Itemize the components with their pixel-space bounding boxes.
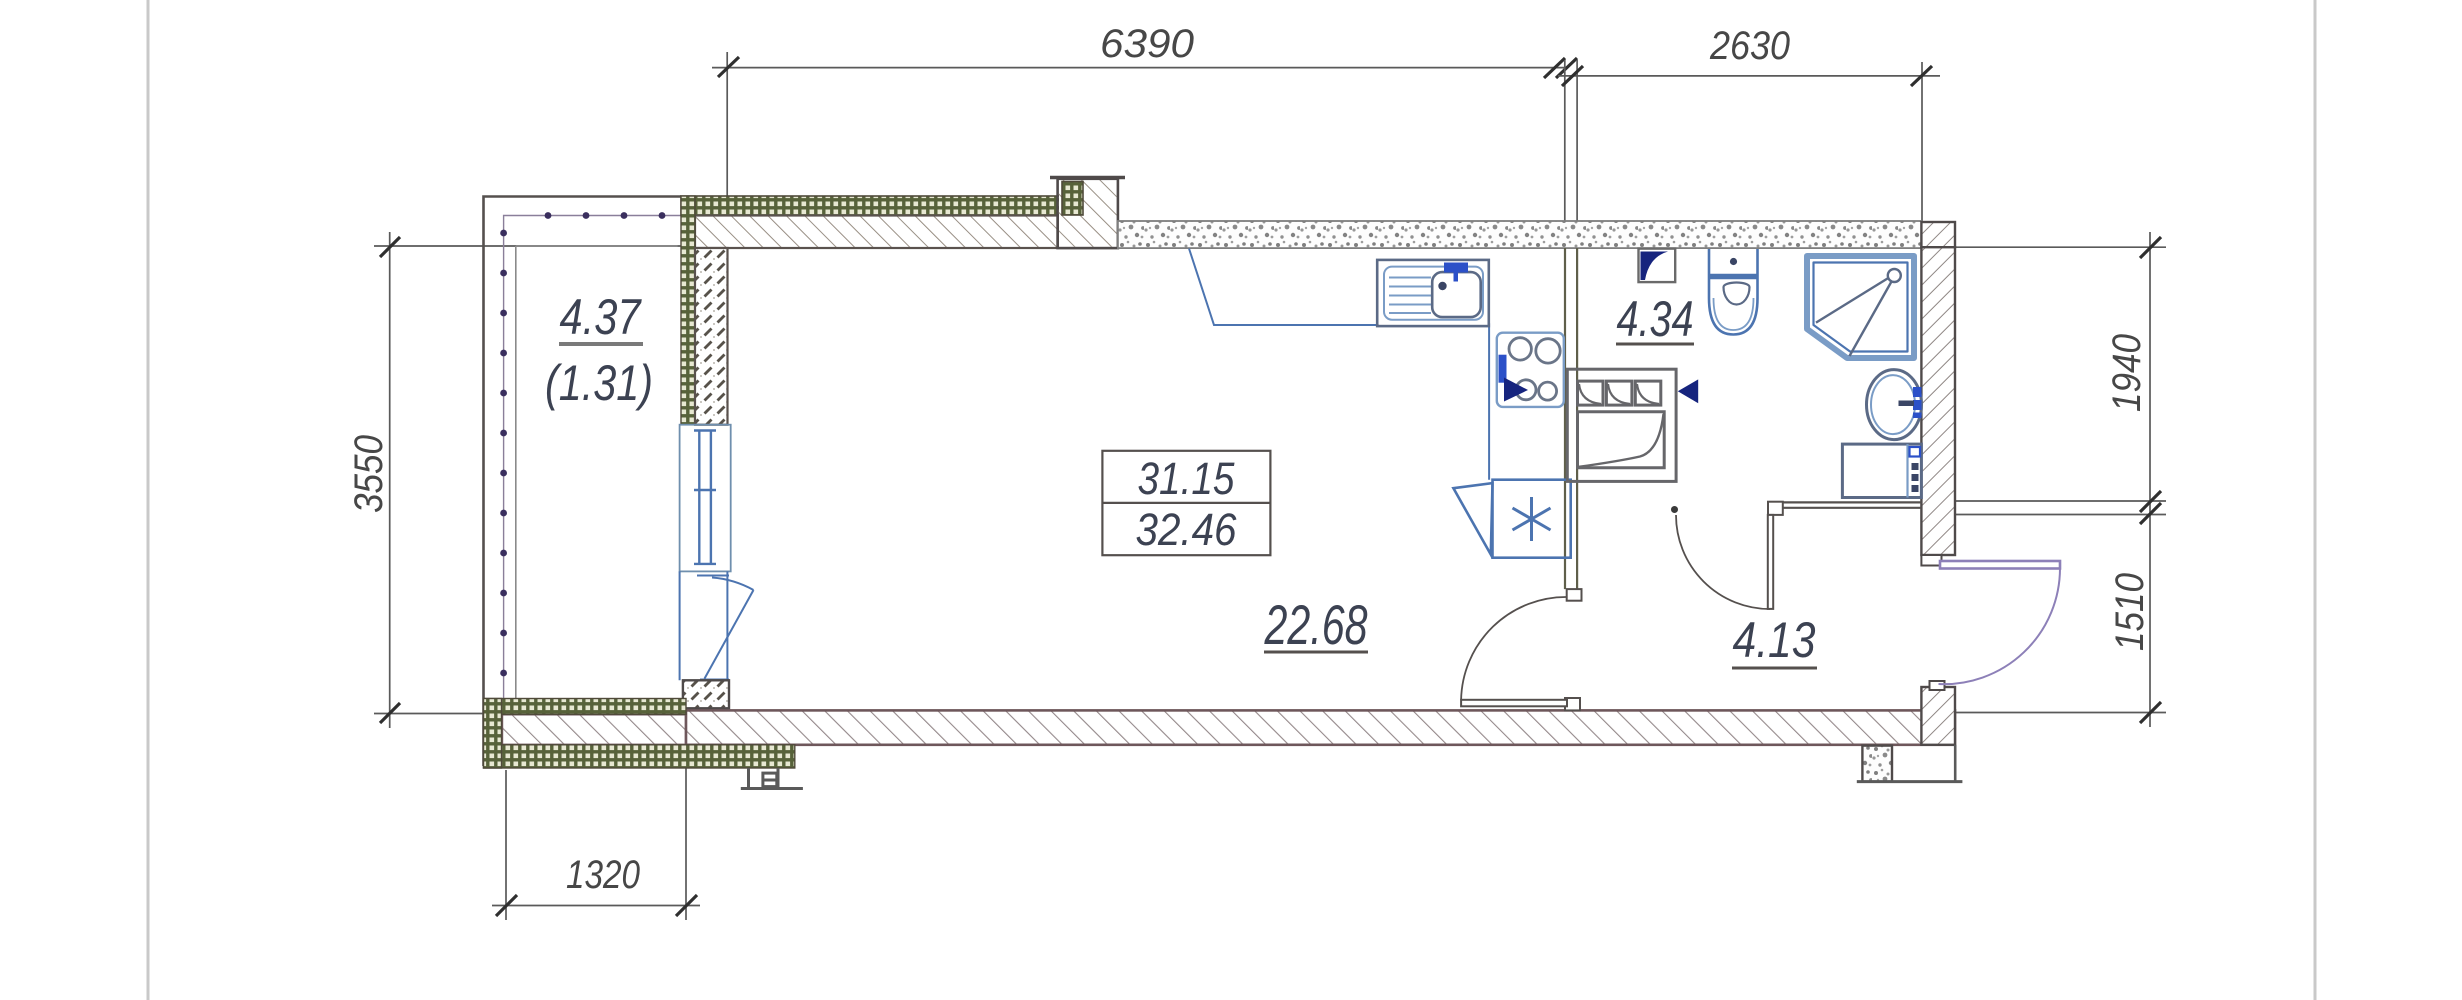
svg-text:2630: 2630 — [1709, 24, 1790, 68]
svg-text:4.37: 4.37 — [560, 289, 643, 345]
svg-text:6390: 6390 — [1100, 22, 1194, 66]
svg-text:31.15: 31.15 — [1138, 453, 1236, 504]
svg-text:1320: 1320 — [566, 853, 640, 897]
svg-text:1510: 1510 — [2108, 573, 2152, 651]
svg-text:1940: 1940 — [2105, 334, 2149, 412]
svg-text:22.68: 22.68 — [1264, 593, 1368, 656]
svg-text:4.34: 4.34 — [1617, 291, 1694, 347]
svg-text:(1.31): (1.31) — [545, 355, 653, 411]
svg-text:4.13: 4.13 — [1733, 612, 1816, 668]
svg-text:3550: 3550 — [347, 435, 391, 513]
svg-text:32.46: 32.46 — [1136, 504, 1238, 555]
